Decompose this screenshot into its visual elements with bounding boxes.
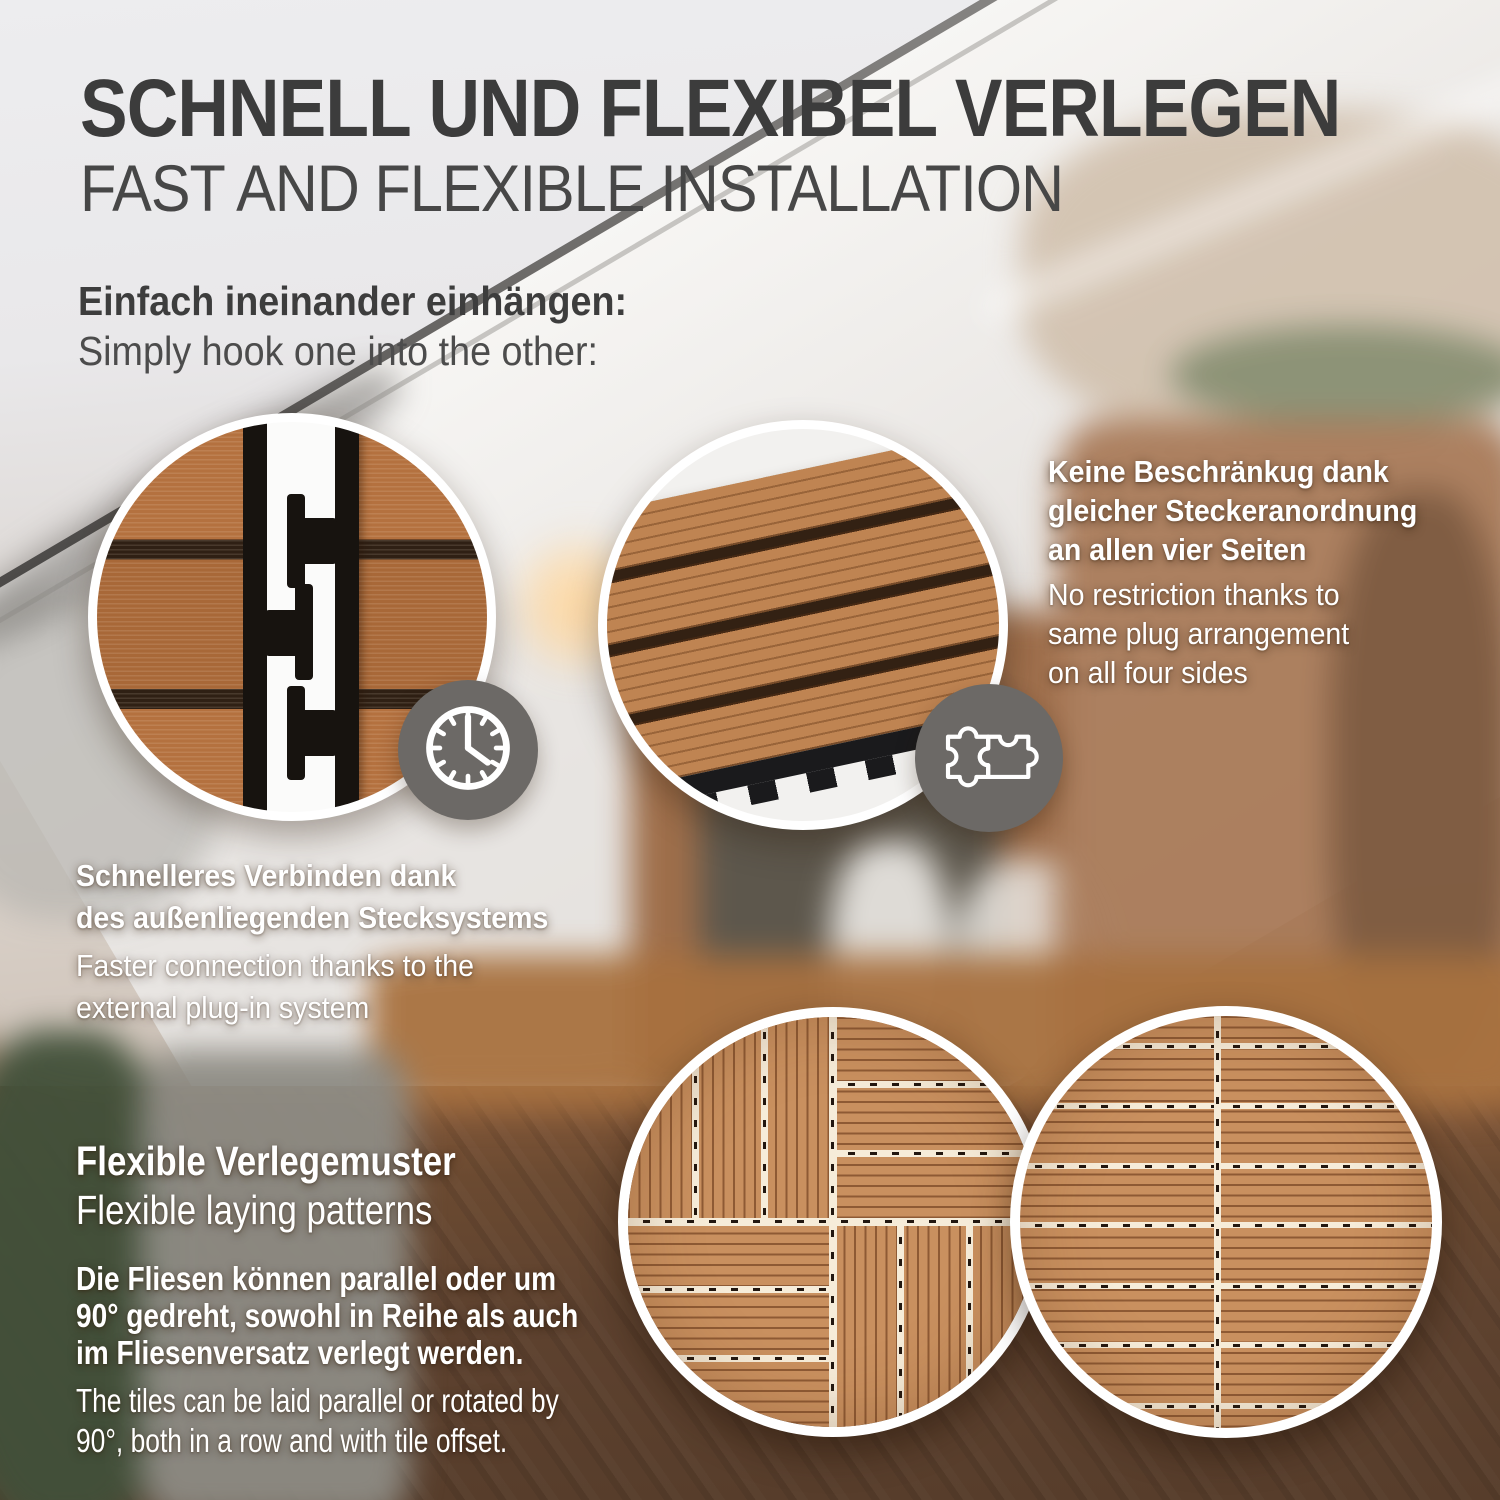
board-seam (897, 1222, 904, 1427)
puzzle-badge (915, 684, 1063, 832)
plug-callout-de-line: Keine Beschränkug dank (1048, 452, 1417, 491)
board-seam (1020, 1222, 1432, 1228)
board-seam (628, 1286, 833, 1293)
patterns-body-en-line: 90°, both in a row and with tile offset. (76, 1421, 559, 1461)
clock-badge (398, 680, 538, 820)
page-subtitle: FAST AND FLEXIBLE INSTALLATION (80, 150, 1063, 226)
plug-callout-en-line: same plug arrangement (1048, 614, 1417, 653)
clip-hook (287, 494, 305, 588)
plug-callout-de-line: an allen vier Seiten (1048, 530, 1417, 569)
speed-callout: Schnelleres Verbinden dank des außenlieg… (76, 855, 589, 1029)
plug-callout-en-line: No restriction thanks to (1048, 575, 1417, 614)
laying-pattern-rotated (618, 1007, 1048, 1437)
board-seam (833, 1150, 1038, 1157)
board-seam (966, 1222, 973, 1427)
board-seam (1020, 1103, 1432, 1109)
tile-horizontal (628, 1222, 833, 1427)
hook-intro: Einfach ineinander einhängen: Simply hoo… (78, 276, 675, 376)
board-seam (1020, 1163, 1432, 1169)
plug-callout-de-line: gleicher Steckeranordnung (1048, 491, 1417, 530)
board-seam (833, 1081, 1038, 1088)
patterns-body-de-line: Die Fliesen können parallel oder um (76, 1260, 589, 1297)
tile-edge-left (88, 413, 245, 821)
patterns-section: Flexible Verlegemuster Flexible laying p… (76, 1136, 680, 1461)
plug-callout: Keine Beschränkug dank gleicher Steckera… (1048, 452, 1449, 692)
patterns-heading-en: Flexible laying patterns (76, 1186, 589, 1234)
hook-intro-heading-de: Einfach ineinander einhängen: (78, 276, 627, 326)
plug-callout-en-line: on all four sides (1048, 653, 1417, 692)
board-seam (1020, 1043, 1432, 1049)
plastic-edge-left (243, 413, 267, 821)
speed-callout-de-line: Schnelleres Verbinden dank (76, 855, 548, 897)
board-seam (761, 1017, 768, 1222)
speed-callout-de-line: des außenliegenden Stecksystems (76, 897, 548, 939)
patterns-body-en-line: The tiles can be laid parallel or rotate… (76, 1381, 559, 1421)
board-seam (1020, 1342, 1432, 1348)
board-seam (1020, 1403, 1432, 1409)
tile-horizontal (833, 1017, 1038, 1222)
plastic-edge-right (335, 413, 359, 821)
clock-icon (416, 696, 520, 805)
board-seam (1020, 1283, 1432, 1289)
patterns-body-de-line: im Fliesenversatz verlegt werden. (76, 1334, 589, 1371)
speed-callout-en-line: external plug-in system (76, 987, 548, 1029)
page-title: SCHNELL UND FLEXIBEL VERLEGEN (80, 62, 1340, 156)
tile-vertical (833, 1222, 1038, 1427)
puzzle-icon (935, 710, 1043, 807)
tile-vertical (628, 1017, 833, 1222)
laying-pattern-parallel (1010, 1006, 1442, 1438)
clip-hook (295, 584, 313, 680)
product-infographic: SCHNELL UND FLEXIBEL VERLEGEN FAST AND F… (0, 0, 1500, 1500)
patterns-body-de-line: 90° gedreht, sowohl in Reihe als auch (76, 1297, 589, 1334)
tile-seam-vertical (1214, 1016, 1221, 1428)
patterns-heading-de: Flexible Verlegemuster (76, 1136, 589, 1186)
speed-callout-en-line: Faster connection thanks to the (76, 945, 548, 987)
clip-hook (287, 686, 305, 780)
hook-intro-text-en: Simply hook one into the other: (78, 326, 627, 376)
board-seam (692, 1017, 699, 1222)
board-seam (628, 1355, 833, 1362)
tile-seam-horizontal (628, 1218, 1038, 1226)
